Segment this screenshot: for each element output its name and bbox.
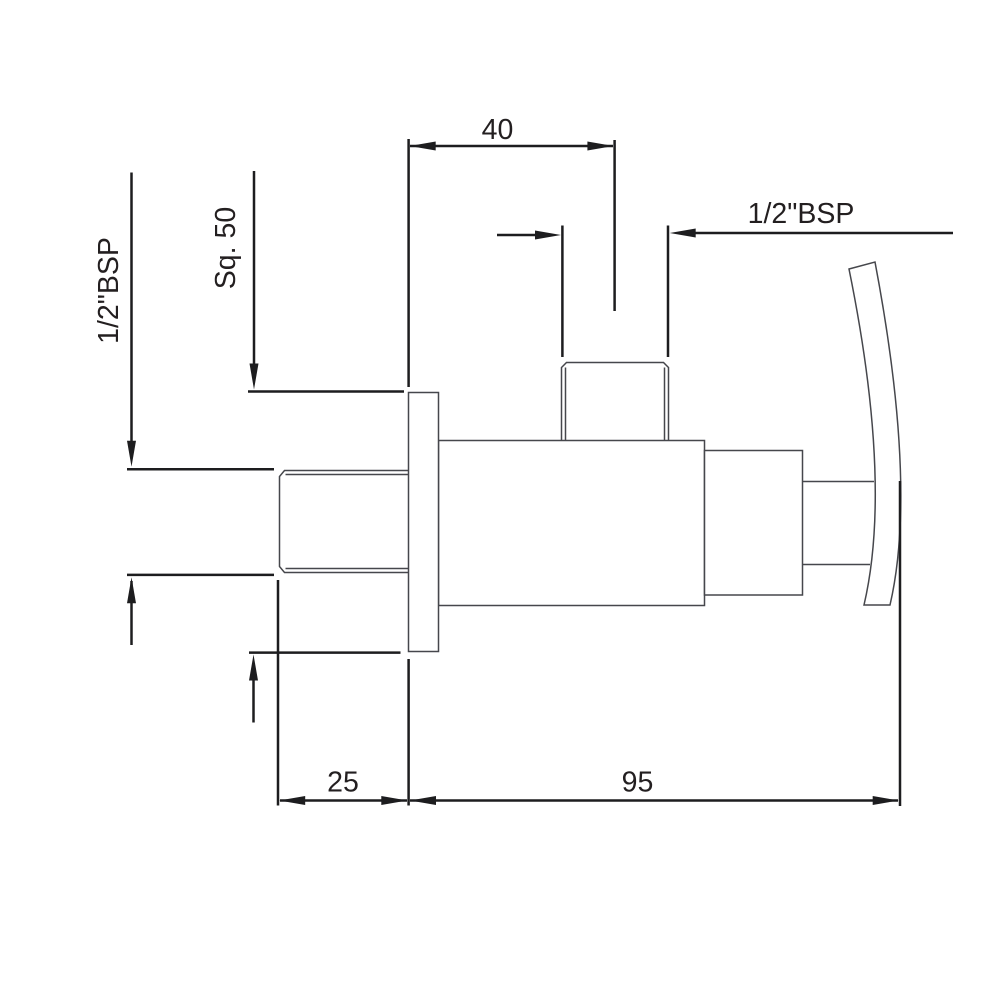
svg-text:40: 40	[482, 114, 514, 146]
svg-text:1/2"BSP: 1/2"BSP	[93, 237, 125, 344]
svg-text:1/2"BSP: 1/2"BSP	[748, 198, 855, 230]
svg-text:95: 95	[622, 767, 654, 799]
svg-text:25: 25	[327, 767, 359, 799]
svg-text:Sq. 50: Sq. 50	[210, 207, 242, 289]
